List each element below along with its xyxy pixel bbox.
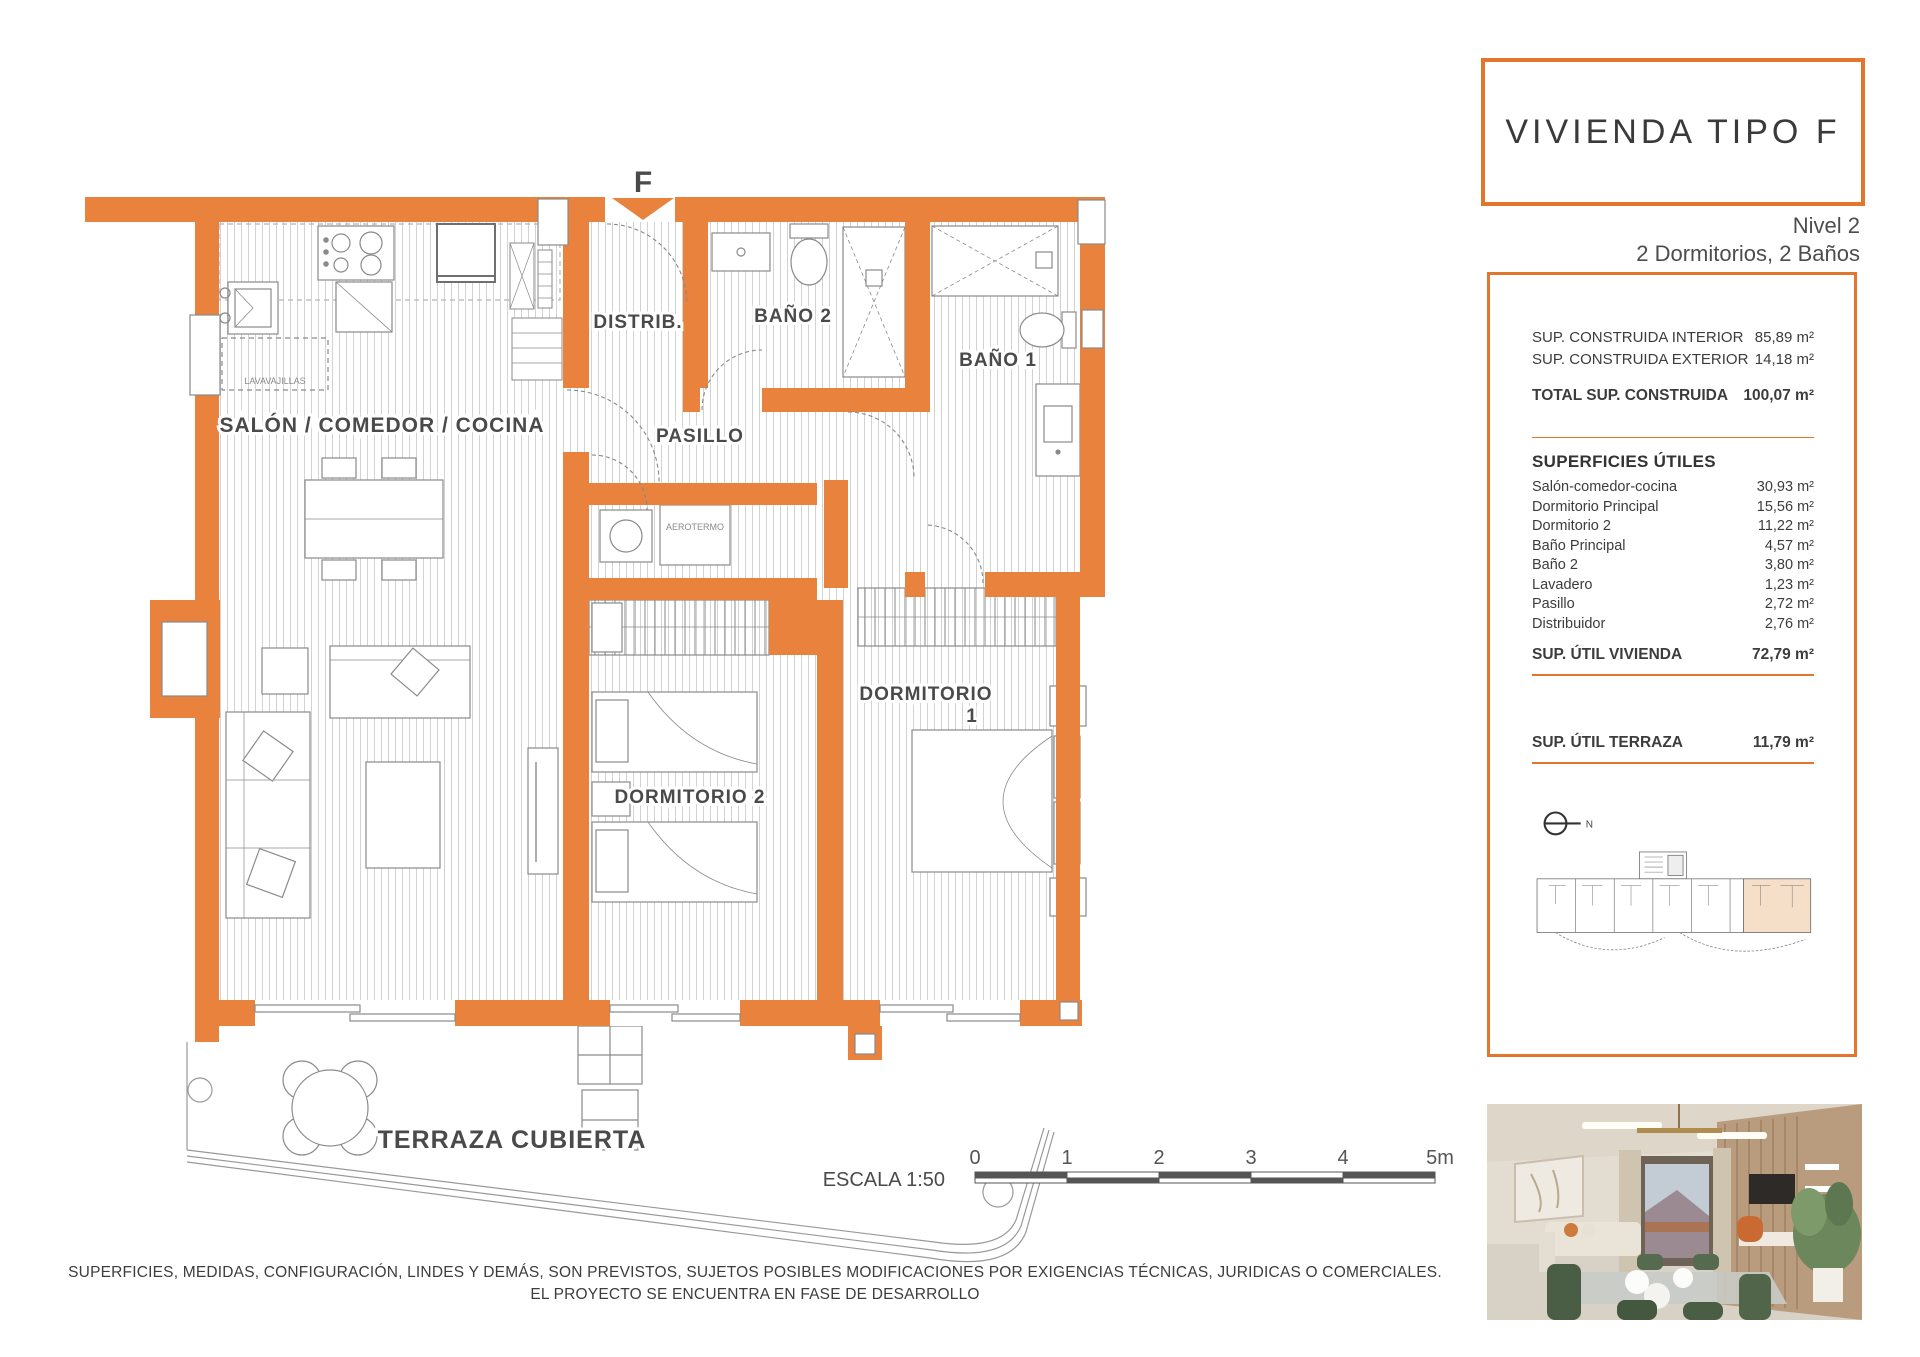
disclaimer-line2: EL PROYECTO SE ENCUENTRA EN FASE DE DESA…	[60, 1284, 1450, 1306]
terrace-total-row: SUP. ÚTIL TERRAZA 11,79 m²	[1532, 732, 1814, 764]
dishwasher-label: LAVAVAJILLAS	[244, 376, 305, 386]
label-dorm1: DORMITORIO	[859, 684, 992, 705]
oven-icon	[336, 282, 392, 332]
label-terraza: TERRAZA CUBIERTA	[378, 1126, 647, 1154]
scale-tick-1: 1	[1061, 1147, 1072, 1169]
useful-total-row: SUP. ÚTIL VIVIENDA 72,79 m²	[1532, 644, 1814, 676]
divider	[1532, 437, 1814, 438]
label-bano1: BAÑO 1	[959, 349, 1037, 371]
stove-icon	[318, 226, 394, 280]
terrace-column	[188, 1078, 212, 1102]
useful-row: Salón-comedor-cocina30,93 m²	[1532, 478, 1814, 498]
vanity1-icon	[1036, 384, 1080, 476]
disclaimer: SUPERFICIES, MEDIDAS, CONFIGURACIÓN, LIN…	[60, 1262, 1450, 1306]
label-dorm1-num: 1	[966, 706, 978, 727]
tv-sideboard	[528, 748, 558, 874]
keyplan-wrap: N	[1532, 786, 1814, 1006]
bed-single-1	[592, 692, 757, 772]
entrance-marker: F	[612, 166, 674, 220]
coffee-table	[366, 762, 440, 868]
surface-panel: SUP. CONSTRUIDA INTERIOR 85,89 m² SUP. C…	[1487, 272, 1857, 1057]
level-label: Nivel 2	[1380, 212, 1860, 240]
armchair	[262, 648, 308, 694]
useful-heading: SUPERFICIES ÚTILES	[1532, 452, 1814, 472]
fridge-icon	[437, 224, 495, 282]
scale-tick-0: 0	[969, 1147, 980, 1169]
window	[538, 199, 568, 245]
disclaimer-line1: SUPERFICIES, MEDIDAS, CONFIGURACIÓN, LIN…	[60, 1262, 1450, 1284]
useful-row: Distribuidor2,76 m²	[1532, 615, 1814, 635]
window-dorm1	[880, 1000, 1020, 1026]
interior-photo	[1487, 1104, 1862, 1320]
window	[190, 315, 220, 395]
aerotermo-unit: AEROTERMO	[660, 505, 730, 565]
shower2-icon	[843, 227, 905, 377]
floor-plan-svg: LAVAVAJILLAS AEROTERMO	[0, 0, 1480, 1357]
page-title: VIVIENDA TIPO F	[1505, 113, 1840, 152]
entrance-letter: F	[634, 166, 652, 199]
title-box: VIVIENDA TIPO F	[1481, 58, 1865, 206]
entrance-arrow-icon	[612, 198, 674, 220]
useful-row: Pasillo2,72 m²	[1532, 595, 1814, 615]
bedroom2-furniture	[589, 600, 769, 902]
useful-row: Dormitorio 211,22 m²	[1532, 517, 1814, 537]
window-dorm2	[610, 1000, 740, 1026]
built-total-row: TOTAL SUP. CONSTRUIDA 100,07 m²	[1532, 385, 1814, 407]
north-label: N	[1586, 820, 1593, 831]
floorplan-sheet: { "header": { "title": "VIVIENDA TIPO F"…	[0, 0, 1920, 1357]
shower1-icon	[932, 226, 1058, 296]
chaise-longue	[330, 646, 470, 718]
useful-row: Dormitorio Principal15,56 m²	[1532, 498, 1814, 518]
sink-icon	[220, 282, 278, 334]
terrace-table-set	[283, 1061, 377, 1155]
toilet2-icon	[790, 224, 828, 285]
useful-row: Lavadero1,23 m²	[1532, 576, 1814, 596]
subtitle: Nivel 2 2 Dormitorios, 2 Baños	[1380, 212, 1860, 268]
label-dorm2: DORMITORIO 2	[615, 787, 766, 808]
laundry-fixtures: AEROTERMO	[600, 505, 730, 565]
scale-tick-3: 3	[1245, 1147, 1256, 1169]
label-pasillo: PASILLO	[656, 426, 744, 447]
scale-tick-2: 2	[1153, 1147, 1164, 1169]
window	[1082, 310, 1103, 348]
highlighted-unit	[1744, 879, 1811, 933]
scale-label: ESCALA 1:50	[823, 1169, 945, 1191]
sink2-icon	[712, 233, 770, 271]
label-bano2: BAÑO 2	[754, 305, 832, 327]
washing-machine-icon	[600, 510, 652, 562]
building-outline	[1537, 852, 1811, 933]
scale-tick-4: 4	[1337, 1147, 1348, 1169]
useful-list: Salón-comedor-cocina30,93 m² Dormitorio …	[1532, 478, 1814, 634]
window	[1078, 200, 1105, 244]
sliding-door	[255, 1000, 455, 1026]
toilet1-icon	[1020, 312, 1076, 348]
useful-row: Baño 23,80 m²	[1532, 556, 1814, 576]
scale-tick-5: 5m	[1426, 1147, 1454, 1169]
label-distrib: DISTRIB.	[593, 312, 682, 333]
aerotermo-label: AEROTERMO	[666, 522, 724, 532]
balcony-curves	[1556, 933, 1806, 952]
built-row-exterior: SUP. CONSTRUIDA EXTERIOR 14,18 m²	[1532, 349, 1814, 371]
built-row-interior: SUP. CONSTRUIDA INTERIOR 85,89 m²	[1532, 327, 1814, 349]
bed-single-2	[592, 822, 757, 902]
config-label: 2 Dormitorios, 2 Baños	[1380, 240, 1860, 268]
sofa	[226, 712, 310, 918]
scale-bar: ESCALA 1:50 0 1 2 3 4 5m	[823, 1147, 1454, 1191]
useful-row: Baño Principal4,57 m²	[1532, 537, 1814, 557]
north-compass-icon	[1545, 813, 1581, 835]
keyplan-svg: N	[1532, 786, 1814, 1001]
label-salon: SALÓN / COMEDOR / COCINA	[219, 413, 544, 437]
